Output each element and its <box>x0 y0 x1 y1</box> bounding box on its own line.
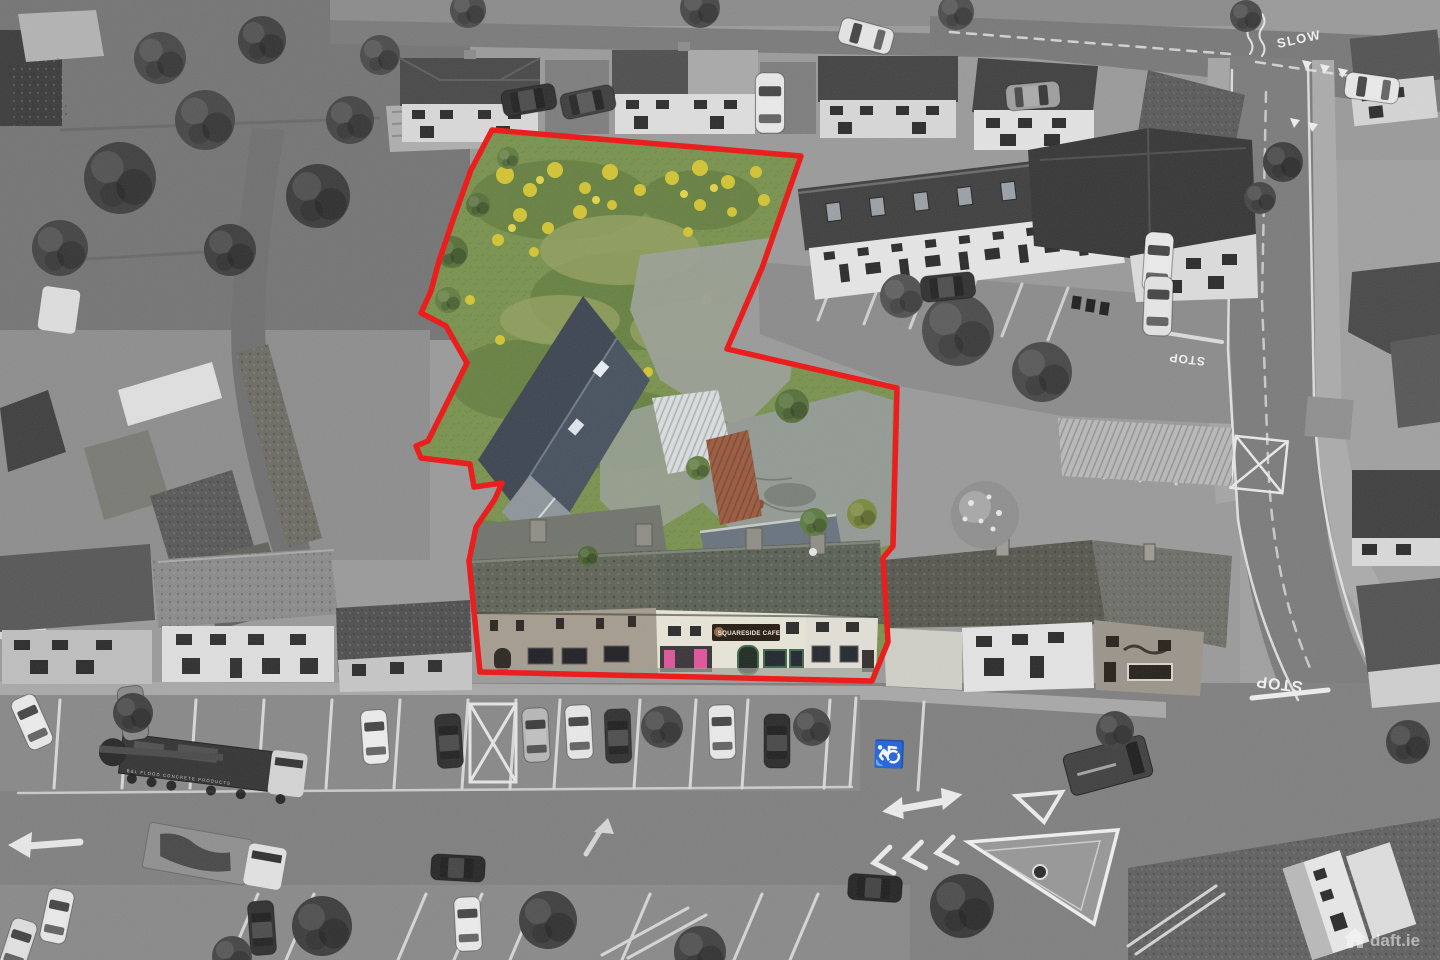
aerial-photo-canvas: SLOW STOP STOP ♿ <box>0 0 1440 960</box>
film-grain-overlay <box>0 0 1440 960</box>
aerial-photograph: SLOW STOP STOP ♿ <box>0 0 1440 960</box>
